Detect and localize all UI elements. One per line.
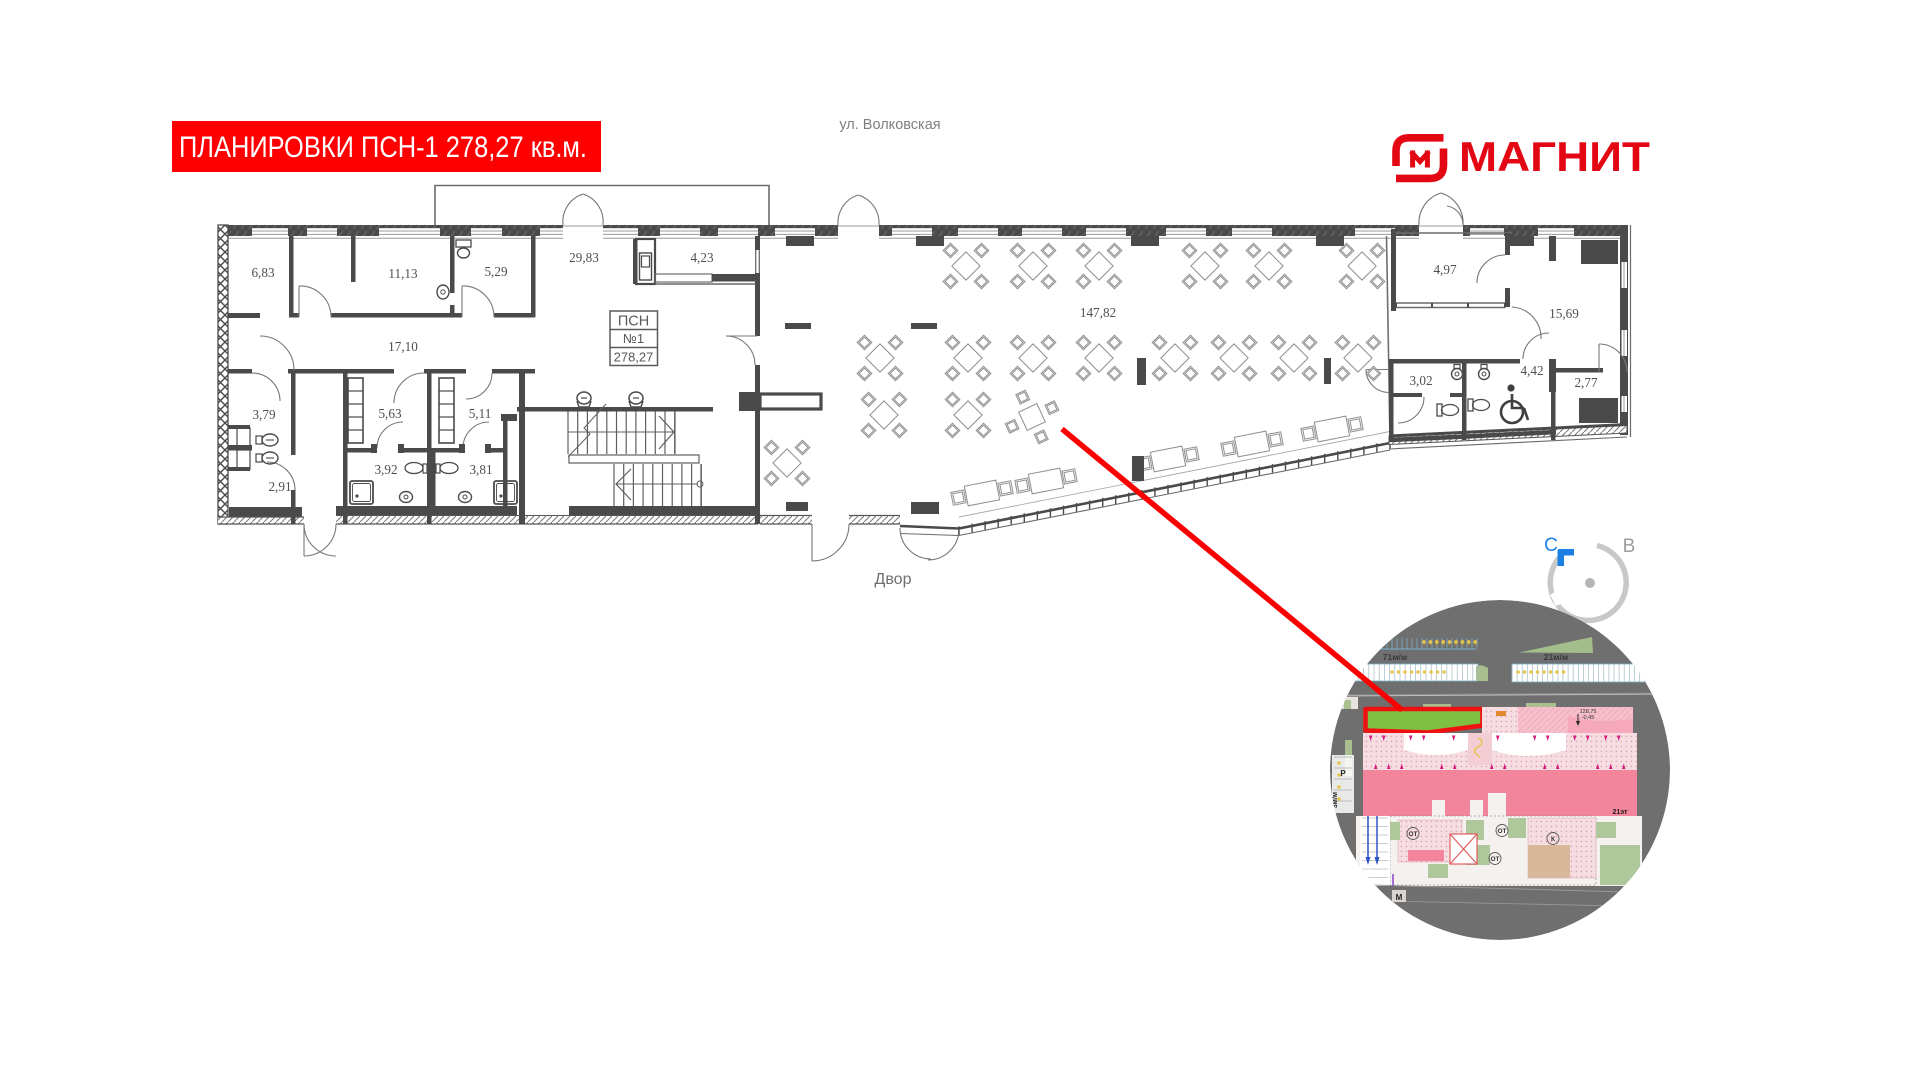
svg-text:М: М — [1396, 893, 1403, 902]
svg-text:2,91: 2,91 — [268, 479, 291, 494]
svg-text:147,82: 147,82 — [1080, 305, 1116, 320]
svg-text:ПЛАНИРОВКИ ПСН-1 278,27 кв.м.: ПЛАНИРОВКИ ПСН-1 278,27 кв.м. — [179, 131, 587, 164]
svg-text:№1: №1 — [623, 331, 644, 346]
svg-text:ул. Волковская: ул. Волковская — [839, 117, 940, 133]
svg-text:Двор: Двор — [875, 571, 912, 588]
svg-text:5,11: 5,11 — [469, 406, 492, 421]
svg-text:2,77: 2,77 — [1574, 375, 1597, 390]
svg-text:ПСН: ПСН — [618, 314, 649, 330]
svg-text:МАГНИТ: МАГНИТ — [1459, 133, 1650, 180]
svg-text:5,63: 5,63 — [378, 406, 401, 421]
svg-text:4,42: 4,42 — [1520, 363, 1543, 378]
svg-text:21м/м: 21м/м — [1544, 652, 1568, 662]
svg-text:С: С — [1544, 535, 1558, 556]
svg-text:15,69: 15,69 — [1549, 306, 1579, 321]
svg-text:29,83: 29,83 — [569, 250, 599, 265]
svg-text:4,23: 4,23 — [690, 250, 713, 265]
svg-text:3,02: 3,02 — [1409, 373, 1432, 388]
svg-text:21эт: 21эт — [1613, 809, 1629, 816]
svg-text:17,10: 17,10 — [388, 339, 418, 354]
svg-text:ОТ: ОТ — [1490, 856, 1499, 863]
svg-text:278,27: 278,27 — [614, 350, 654, 365]
svg-text:5,29: 5,29 — [484, 264, 507, 279]
svg-text:ОТ: ОТ — [1497, 828, 1506, 835]
svg-text:6,83: 6,83 — [251, 265, 274, 280]
svg-text:71м/м: 71м/м — [1383, 652, 1407, 662]
svg-text:3,92: 3,92 — [374, 462, 397, 477]
svg-text:3,79: 3,79 — [252, 407, 275, 422]
svg-text:В: В — [1623, 536, 1636, 557]
svg-text:Р: Р — [1340, 769, 1346, 778]
svg-text:-0,45: -0,45 — [1582, 715, 1595, 721]
svg-text:11,13: 11,13 — [388, 266, 418, 281]
svg-text:ОТ: ОТ — [1408, 831, 1417, 838]
svg-text:3,81: 3,81 — [469, 462, 492, 477]
svg-text:К: К — [1551, 836, 1555, 843]
svg-text:4,97: 4,97 — [1433, 262, 1456, 277]
